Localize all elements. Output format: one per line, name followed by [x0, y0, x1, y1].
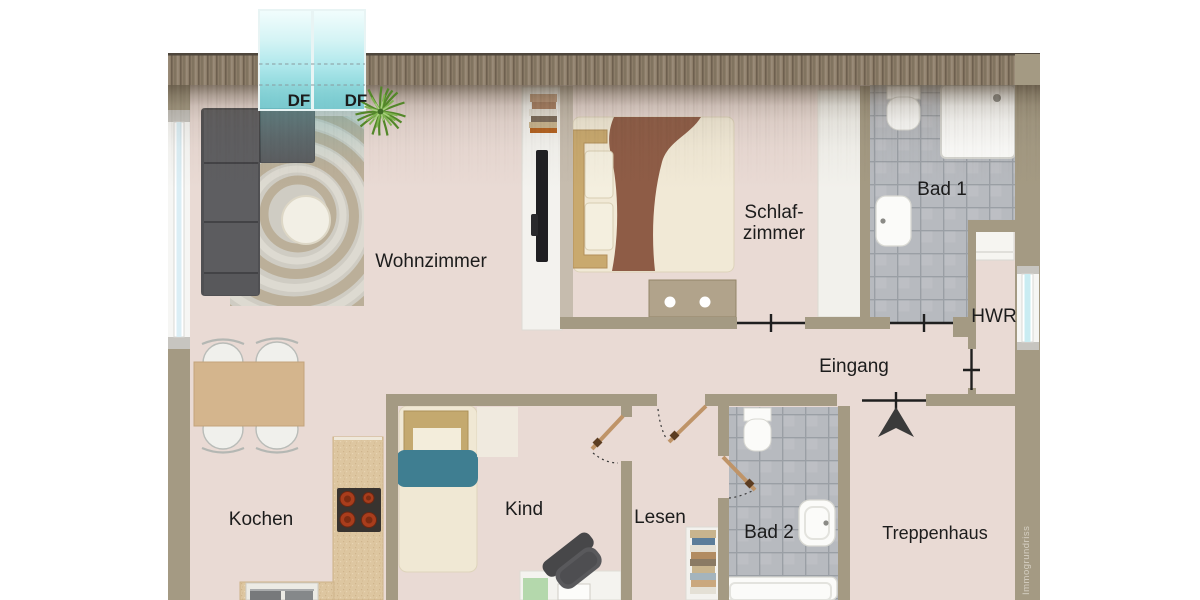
svg-text:DF: DF: [345, 91, 368, 110]
svg-text:Wohnzimmer: Wohnzimmer: [375, 251, 487, 272]
svg-text:Bad 2: Bad 2: [744, 522, 794, 543]
svg-text:Lesen: Lesen: [634, 507, 686, 528]
svg-text:Eingang: Eingang: [819, 356, 889, 377]
svg-text:Treppenhaus: Treppenhaus: [882, 523, 987, 543]
svg-text:Kochen: Kochen: [229, 509, 293, 530]
svg-text:Immogrundriss: Immogrundriss: [1021, 526, 1032, 595]
svg-text:Bad 1: Bad 1: [917, 179, 967, 200]
svg-text:Schlaf-: Schlaf-: [744, 202, 803, 223]
svg-text:zimmer: zimmer: [743, 223, 806, 244]
svg-text:Kind: Kind: [505, 499, 543, 520]
svg-text:HWR: HWR: [971, 306, 1016, 327]
svg-text:DF: DF: [288, 91, 311, 110]
